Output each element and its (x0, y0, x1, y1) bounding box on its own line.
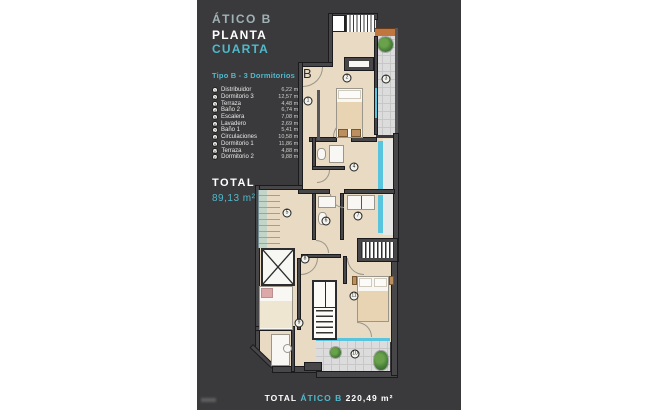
bath2-vanity (318, 196, 336, 208)
window-glass-1 (378, 141, 383, 189)
bath1-vanity (329, 145, 344, 163)
facade-ledge (383, 139, 393, 235)
plant-bottom-large (374, 351, 388, 370)
plan-room-marker: 4 (350, 163, 359, 172)
bed2-nightstand-r (389, 276, 394, 285)
terrace-rail-right (395, 28, 398, 135)
plan-room-marker: 7 (354, 212, 363, 221)
bath1-toilet (317, 148, 326, 160)
plant-top-terrace (378, 37, 393, 52)
plan-room-marker: 6 (322, 217, 331, 226)
window-glass-2 (378, 195, 383, 233)
plan-room-marker: 5 (283, 209, 292, 218)
footer-total-area: 220,49 m² (346, 393, 394, 403)
brochure-panel: ÁTICO B PLANTA CUARTA Tipo B - 3 Dormito… (197, 0, 461, 410)
stairs-void (261, 248, 295, 286)
wall-mid-b (344, 189, 395, 194)
wall-terrace-sep (374, 36, 378, 135)
fine-print (201, 398, 216, 402)
bed1-blanket (260, 301, 292, 328)
plan-room-marker: 3 (382, 75, 391, 84)
vent-louver (361, 242, 394, 258)
bed2-blanket (358, 291, 388, 321)
footer-total: TOTAL ÁTICO B 220,49 m² (197, 393, 461, 403)
wall-bedroom3-left (328, 13, 333, 67)
unit-label: B (303, 66, 312, 81)
desk-chair (283, 344, 292, 353)
plan-room-marker: 11 (350, 292, 359, 301)
wardrobe-doors (314, 282, 335, 308)
window-top-louver (345, 15, 375, 32)
dresser-top (348, 60, 370, 68)
plan-room-marker: 1 (304, 97, 313, 106)
planter-box (304, 362, 322, 371)
bed2-pillow-r (374, 278, 387, 287)
wardrobe-rails (316, 310, 333, 336)
wall-bottom-terrace (316, 371, 398, 378)
plan-room-marker: 10 (351, 350, 360, 359)
plant-bottom-small (330, 347, 341, 358)
plan-room-marker: 8 (301, 255, 310, 264)
bed2-pillow-l (359, 278, 372, 287)
wall-bath2-left (312, 193, 316, 240)
floor-plan: B 1234567891011 (197, 0, 461, 410)
bed3-footbench-r (351, 129, 361, 137)
bed1-pillow (261, 288, 273, 298)
plan-room-marker: 9 (295, 319, 304, 328)
bed3-blanket (337, 102, 362, 129)
terrace-door-glass-top (375, 88, 377, 118)
laundry-divider (361, 196, 362, 209)
stairs-skylight (258, 190, 267, 248)
wall-entry-closet (317, 90, 320, 140)
plan-room-marker: 2 (343, 74, 352, 83)
bed3-footbench-l (338, 129, 348, 137)
stairs-void-cross (263, 250, 293, 284)
footer-total-label: TOTAL (265, 393, 297, 403)
wardrobe (312, 280, 337, 340)
bed3-pillow (338, 90, 361, 99)
window-top-pane (331, 15, 345, 32)
footer-unit-name: ÁTICO B (300, 393, 342, 403)
